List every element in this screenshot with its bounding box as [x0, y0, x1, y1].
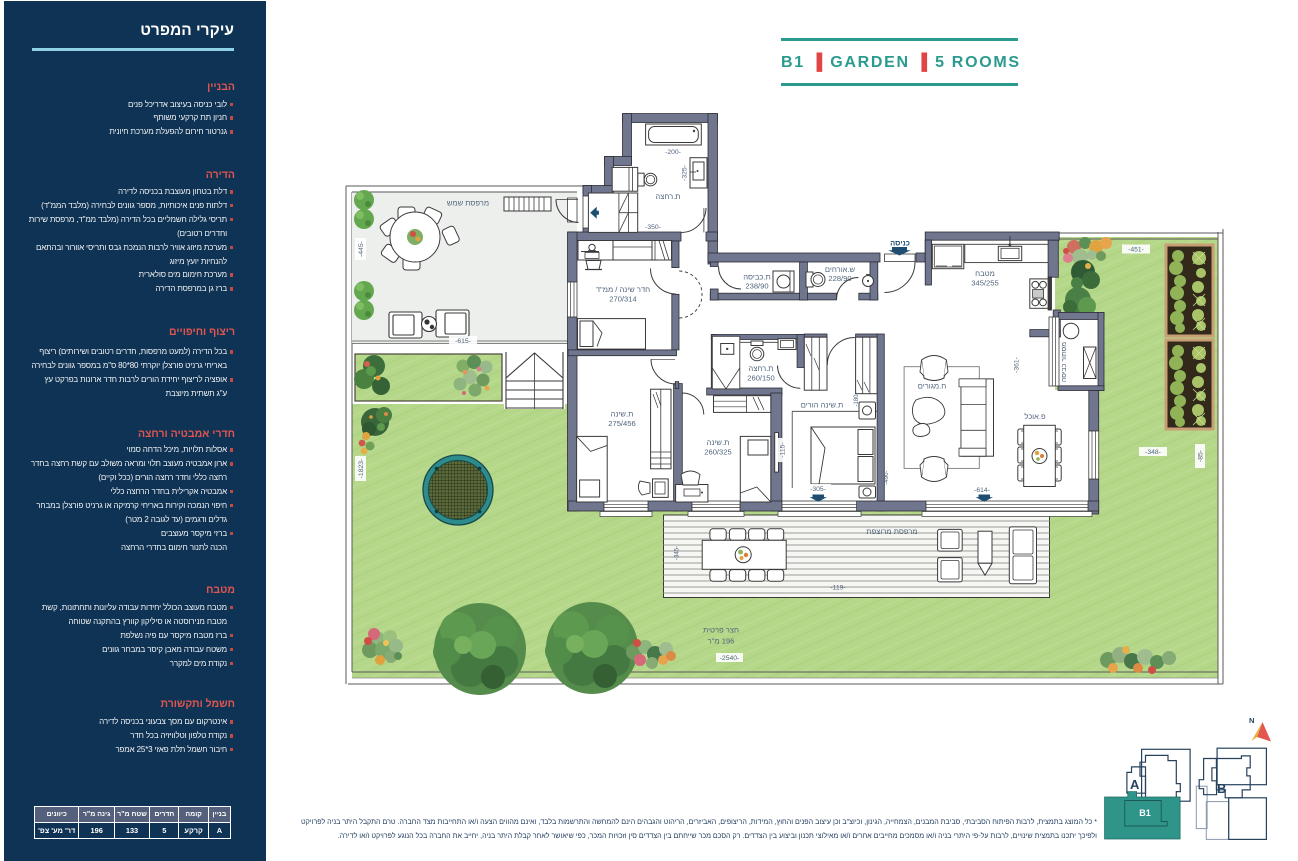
svg-text:270/314: 270/314 [609, 295, 636, 304]
svg-text:פ.אוכל: פ.אוכל [1024, 412, 1046, 421]
svg-text:238/90: 238/90 [745, 282, 768, 291]
svg-text:-615-: -615- [455, 338, 471, 345]
svg-text:מרפסת מרוצפת: מרפסת מרוצפת [866, 527, 917, 536]
svg-text:N: N [1249, 716, 1254, 725]
svg-text:-2540-: -2540- [720, 655, 740, 662]
svg-text:B: B [1217, 781, 1226, 796]
svg-text:ת.שינה: ת.שינה [707, 438, 730, 447]
svg-text:-85-: -85- [1198, 450, 1205, 462]
svg-text:B1: B1 [1139, 808, 1151, 818]
svg-text:-614-: -614- [974, 487, 990, 494]
svg-text:-119-: -119- [830, 585, 845, 592]
svg-text:-325-: -325- [682, 165, 689, 181]
svg-text:ת.שינה: ת.שינה [611, 410, 634, 419]
svg-text:-115-: -115- [780, 442, 787, 457]
svg-text:חדר שינה / ממ"ד: חדר שינה / ממ"ד [596, 285, 650, 294]
svg-text:ת.רחצה: ת.רחצה [748, 364, 773, 373]
svg-text:-445-: -445- [358, 241, 365, 257]
svg-text:-180-: -180- [854, 392, 860, 406]
svg-text:מסתור כביסה: מסתור כביסה [1061, 342, 1068, 382]
svg-text:-200-: -200- [665, 149, 681, 156]
svg-text:260/325: 260/325 [704, 448, 731, 457]
svg-text:-345-: -345- [675, 546, 681, 560]
svg-text:260/150: 260/150 [747, 374, 774, 383]
svg-text:ח.מגורים: ח.מגורים [918, 382, 947, 391]
svg-text:חצר פרטית: חצר פרטית [703, 626, 739, 635]
svg-text:345/255: 345/255 [971, 279, 998, 288]
svg-text:196 מ"ר: 196 מ"ר [708, 637, 735, 646]
svg-text:275/456: 275/456 [608, 419, 635, 428]
svg-text:-361-: -361- [1014, 357, 1021, 373]
svg-text:ת.שינה הורים: ת.שינה הורים [801, 401, 844, 410]
svg-text:ש.אורחים: ש.אורחים [825, 265, 856, 274]
svg-text:-305-: -305- [810, 486, 826, 493]
svg-text:כניסה: כניסה [890, 239, 910, 248]
svg-text:228/90: 228/90 [828, 274, 851, 283]
svg-text:-451-: -451- [1128, 247, 1144, 254]
svg-text:-348-: -348- [1145, 449, 1161, 456]
svg-text:מטבח: מטבח [975, 269, 995, 278]
svg-text:-1823-: -1823- [358, 459, 365, 479]
svg-text:-490-: -490- [884, 470, 890, 484]
svg-text:ת.כביסה: ת.כביסה [743, 273, 770, 282]
svg-text:מרפסת שמש: מרפסת שמש [447, 199, 489, 208]
svg-text:A: A [1130, 777, 1140, 792]
svg-text:-350-: -350- [645, 224, 661, 231]
svg-text:ת.רחצה: ת.רחצה [655, 192, 680, 201]
